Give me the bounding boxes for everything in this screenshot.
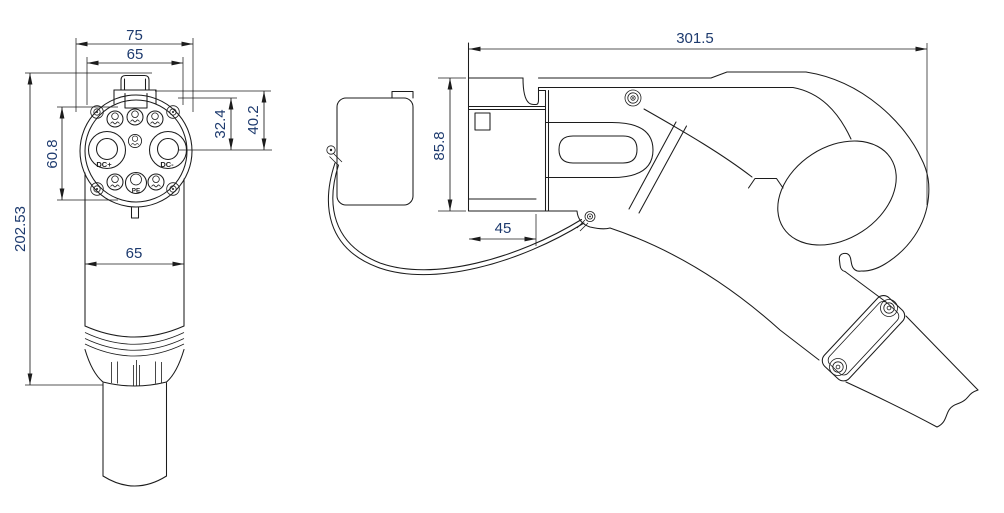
dim-barrel-width: 65 <box>85 245 184 264</box>
screw-head <box>625 90 641 106</box>
dim-flange-width: 75 <box>76 27 193 112</box>
dim-overall-length: 301.5 <box>469 30 927 205</box>
dust-cap <box>327 92 413 206</box>
dim-overall-height: 202.53 <box>12 73 152 385</box>
dim-upper-pin-offset: 32.4 <box>178 98 237 150</box>
dim-label-outer-pin-offset: 40.2 <box>245 105 262 134</box>
signal-pin <box>128 134 141 147</box>
dc-plus-pin: DC+ <box>89 132 126 170</box>
body-top-inner-line <box>539 88 852 140</box>
pin-label-dc-plus: DC+ <box>96 160 112 169</box>
trigger-slot <box>559 136 637 163</box>
ev-connector-drawing: DC+ DC- PE <box>0 0 1004 513</box>
signal-pin <box>107 174 123 190</box>
signal-pin <box>148 174 164 190</box>
latch-lever <box>523 78 539 105</box>
dim-label-flange-width: 75 <box>126 27 143 44</box>
body-front-wall <box>539 91 549 212</box>
front-view-dimensions: 75 65 60.8 202.53 32.4 <box>12 27 272 385</box>
cable-break-line <box>937 390 978 427</box>
signal-pin <box>127 109 143 125</box>
dim-body-height: 85.8 <box>431 78 466 211</box>
dim-label-body-height: 85.8 <box>431 131 448 160</box>
nozzle-step <box>469 107 546 110</box>
screw-hole <box>91 106 104 119</box>
side-view: 301.5 85.8 45 <box>327 30 978 427</box>
dim-label-overall-height: 202.53 <box>12 206 29 252</box>
dim-nozzle-depth: 45 <box>469 214 536 246</box>
dim-label-upper-pin-offset: 32.4 <box>212 109 229 138</box>
screw-head <box>830 359 847 376</box>
front-view: DC+ DC- PE <box>12 27 272 486</box>
tether-cable <box>328 163 588 275</box>
dim-label-overall-length: 301.5 <box>676 30 714 47</box>
nozzle-window <box>475 113 490 130</box>
handle-notch <box>839 253 861 271</box>
handle-upper-edge <box>845 272 978 391</box>
bottom-tab <box>132 208 139 219</box>
hand-hole <box>758 120 915 267</box>
coupling-ring <box>85 326 184 386</box>
dim-label-nozzle-depth: 45 <box>495 220 512 237</box>
body-inner-curve <box>644 109 752 177</box>
cable-lower-edge <box>846 382 937 427</box>
cable-boot <box>103 383 167 486</box>
side-view-dimensions: 301.5 85.8 45 <box>431 30 927 246</box>
screw-head <box>585 212 595 222</box>
pe-pin: PE <box>126 173 147 195</box>
signal-pins <box>107 109 164 190</box>
signal-pin <box>147 111 163 127</box>
cable-clamp <box>819 292 908 384</box>
dim-label-barrel-width: 65 <box>126 245 143 262</box>
technical-drawing-canvas: DC+ DC- PE <box>0 0 1004 513</box>
body-seam-lines <box>629 122 687 213</box>
thumb-tab <box>749 179 784 189</box>
dim-label-pin-field-height: 60.8 <box>44 139 61 168</box>
pin-label-pe: PE <box>132 188 140 195</box>
pin-label-dc-minus: DC- <box>160 160 174 169</box>
signal-pin <box>107 111 123 127</box>
flange-screws <box>91 106 180 196</box>
top-ridge <box>539 72 807 78</box>
trigger-guard <box>546 211 611 229</box>
gun-body <box>469 43 979 427</box>
screw-head <box>881 300 898 317</box>
connector-face-geometry: DC+ DC- PE <box>80 76 192 487</box>
dim-label-face-width: 65 <box>127 46 144 63</box>
handle-lower-edge <box>610 228 819 360</box>
nozzle-bottom <box>469 199 546 211</box>
